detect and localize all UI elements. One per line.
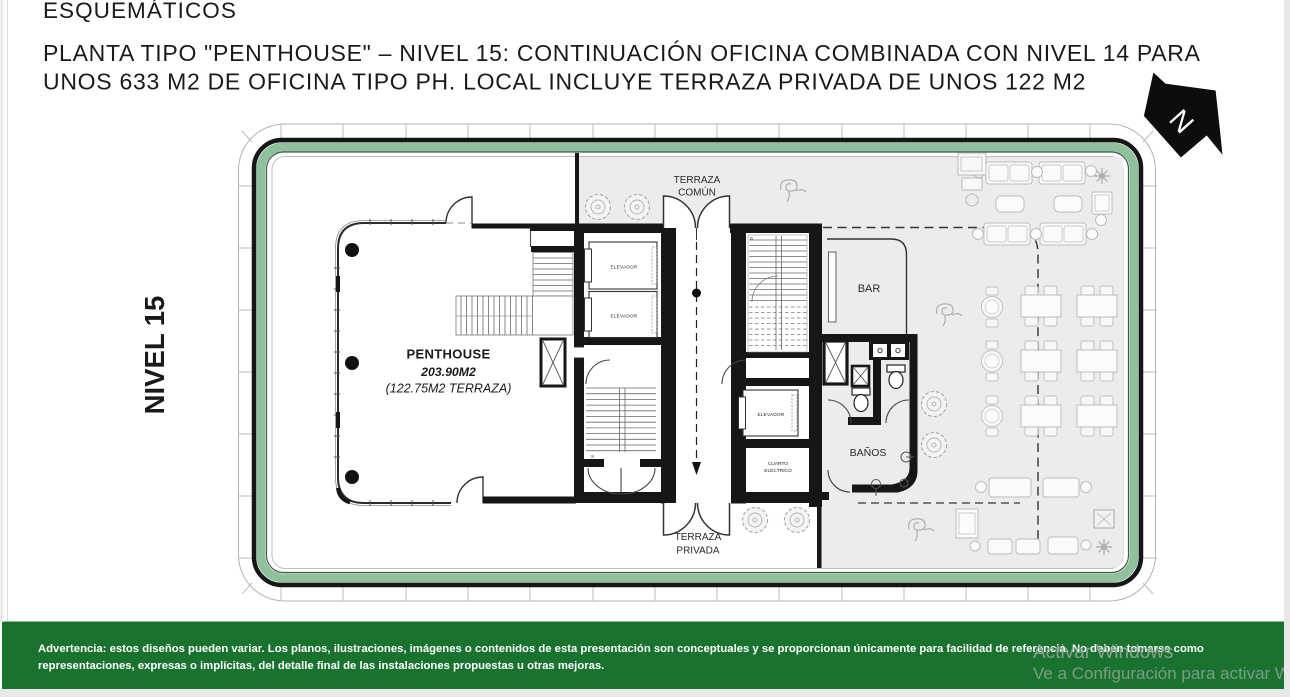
svg-text:CUARTO: CUARTO bbox=[768, 461, 788, 467]
svg-text:PENTHOUSE: PENTHOUSE bbox=[406, 347, 490, 362]
svg-text:representaciones, expresas o i: representaciones, expresas o implícitas,… bbox=[38, 660, 604, 672]
svg-text:UNOS 633 M2 DE OFICINA TIPO PH: UNOS 633 M2 DE OFICINA TIPO PH. LOCAL IN… bbox=[43, 69, 1086, 95]
svg-text:Activar Windows: Activar Windows bbox=[1033, 642, 1173, 663]
svg-text:ELEVADOR: ELEVADOR bbox=[610, 314, 637, 319]
svg-text:B: B bbox=[750, 236, 753, 241]
svg-text:BAR: BAR bbox=[858, 283, 881, 295]
svg-text:ESQUEMÁTICOS: ESQUEMÁTICOS bbox=[43, 0, 237, 23]
svg-text:TERRAZA: TERRAZA bbox=[674, 175, 721, 186]
svg-text:S: S bbox=[591, 454, 594, 459]
svg-text:Advertencia: estos diseños pue: Advertencia: estos diseños pueden variar… bbox=[38, 643, 1204, 655]
svg-text:ELEVADOR: ELEVADOR bbox=[757, 412, 784, 417]
svg-text:PRIVADA: PRIVADA bbox=[676, 546, 719, 557]
svg-text:COMÚN: COMÚN bbox=[678, 186, 716, 199]
svg-text:203.90M2: 203.90M2 bbox=[420, 365, 476, 379]
svg-text:ELÉCTRICO: ELÉCTRICO bbox=[764, 467, 792, 474]
svg-text:(122.75M2 TERRAZA): (122.75M2 TERRAZA) bbox=[386, 382, 512, 396]
svg-text:BAÑOS: BAÑOS bbox=[850, 446, 887, 459]
svg-text:TERRAZA: TERRAZA bbox=[675, 532, 722, 543]
svg-text:Ve a Configuración para activa: Ve a Configuración para activar Windows bbox=[1033, 664, 1290, 683]
svg-text:PLANTA TIPO "PENTHOUSE" – NIVE: PLANTA TIPO "PENTHOUSE" – NIVEL 15: CONT… bbox=[43, 40, 1201, 66]
svg-text:NIVEL 15: NIVEL 15 bbox=[139, 296, 170, 415]
svg-text:ELEVADOR: ELEVADOR bbox=[610, 265, 637, 270]
